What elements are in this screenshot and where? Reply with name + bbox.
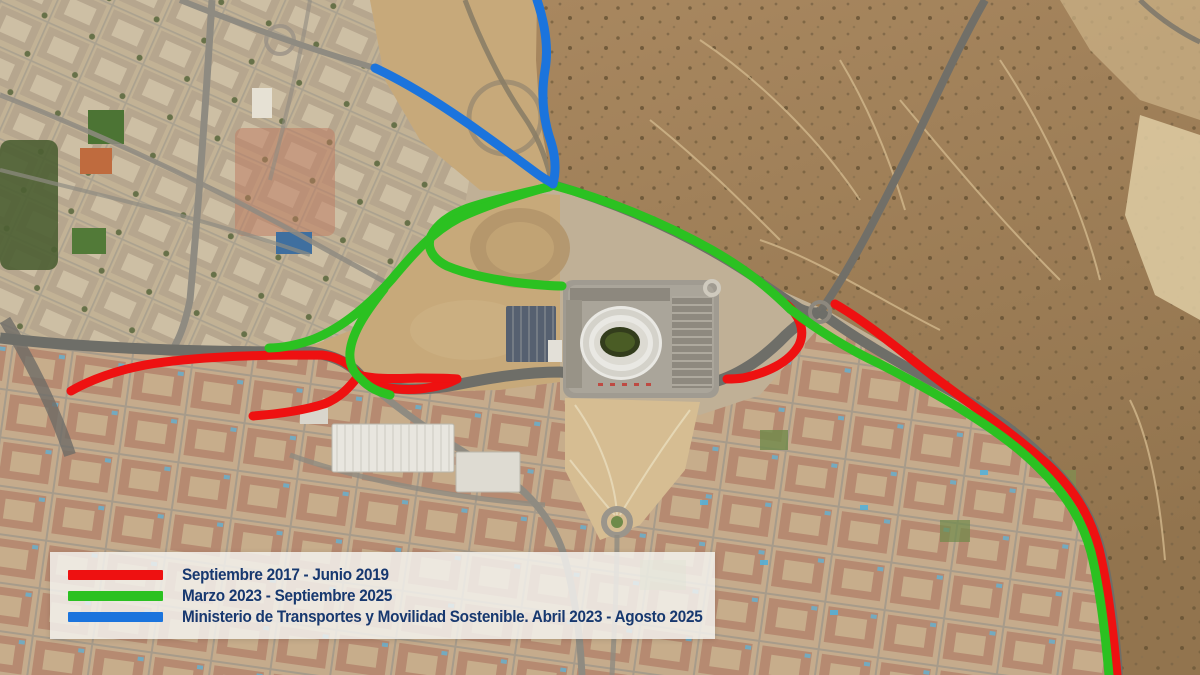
legend-label-phase3: Ministerio de Transportes y Movilidad So… [182,607,702,627]
stadium-north-buildings [570,288,670,301]
legend-row-phase3: Ministerio de Transportes y Movilidad So… [68,609,715,624]
legend-label-phase1: Septiembre 2017 - Junio 2019 [182,565,389,585]
tall-building [252,88,272,118]
residential-cluster [235,128,335,236]
map-container: Septiembre 2017 - Junio 2019 Marzo 2023 … [0,0,1200,675]
legend-swatch-green [68,591,163,601]
sports-field [72,228,106,254]
white-building [548,340,562,362]
legend: Septiembre 2017 - Junio 2019 Marzo 2023 … [50,552,715,639]
legend-row-phase1: Septiembre 2017 - Junio 2019 [68,567,715,582]
legend-swatch-red [68,570,163,580]
legend-swatch-blue [68,612,163,622]
legend-label-phase2: Marzo 2023 - Septiembre 2025 [182,586,392,606]
park [940,520,970,542]
tennis-courts [80,148,112,174]
legend-row-phase2: Marzo 2023 - Septiembre 2025 [68,588,715,603]
parking-lot-west [566,300,582,388]
park-trees [0,140,58,270]
park [760,430,788,450]
warehouse [456,452,520,492]
